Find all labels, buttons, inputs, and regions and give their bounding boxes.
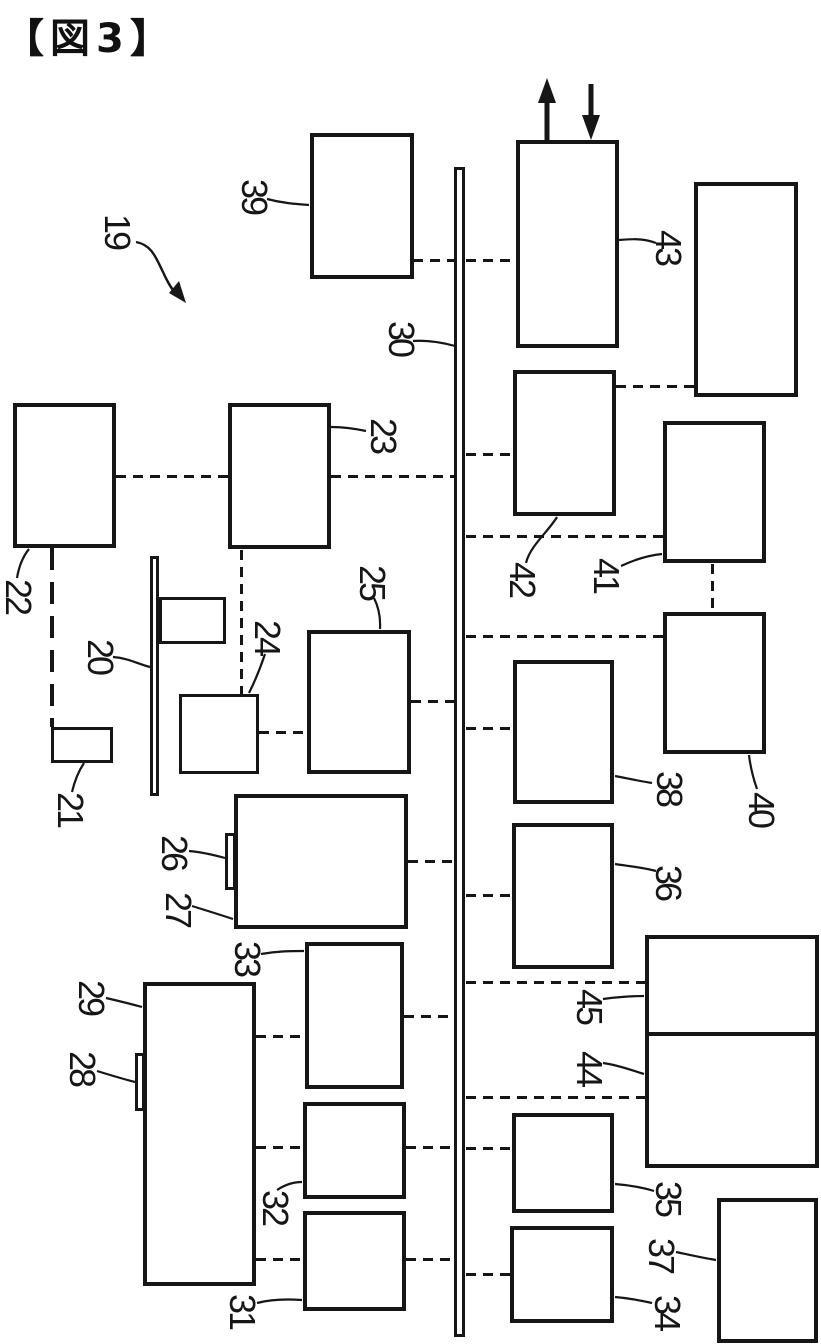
label-38: 38 xyxy=(651,771,687,805)
link-39-bus xyxy=(413,259,456,262)
label-33: 33 xyxy=(229,941,265,975)
label-34: 34 xyxy=(649,1295,685,1329)
block-23 xyxy=(228,403,331,549)
block-21 xyxy=(51,727,113,763)
leader-42 xyxy=(526,517,557,563)
bus-30 xyxy=(454,167,465,1337)
link-29-33 xyxy=(256,1035,305,1038)
link-23-bus xyxy=(331,475,455,478)
panel-20 xyxy=(150,556,159,796)
link-24-25 xyxy=(259,731,307,734)
link-25-bus xyxy=(411,700,455,703)
divider-45-44 xyxy=(649,1032,815,1036)
label-23: 23 xyxy=(365,418,401,452)
leader-41 xyxy=(621,554,662,566)
label-24: 24 xyxy=(249,620,285,654)
leader-37 xyxy=(676,1252,716,1260)
leader-25 xyxy=(374,598,380,629)
label-27: 27 xyxy=(160,892,196,926)
leader-24 xyxy=(249,654,265,693)
link-bus-43 xyxy=(466,259,516,262)
figure-title: 【図3】 xyxy=(4,6,176,64)
label-31: 31 xyxy=(224,1294,260,1328)
block-unlabeled-top-right xyxy=(694,182,798,397)
link-bus-41 xyxy=(466,535,663,538)
leader-22 xyxy=(17,549,29,578)
label-45: 45 xyxy=(571,989,607,1023)
label-40: 40 xyxy=(743,792,779,826)
label-32: 32 xyxy=(257,1190,293,1224)
label-41: 41 xyxy=(588,558,624,592)
block-39 xyxy=(310,133,414,279)
link-bus-44 xyxy=(466,1096,645,1099)
leader-23 xyxy=(331,427,366,431)
patent-figure: 【図3】 xyxy=(0,0,821,1344)
block-40 xyxy=(663,612,766,754)
link-29-31 xyxy=(256,1258,303,1261)
block-43 xyxy=(516,140,619,348)
block-37 xyxy=(717,1198,818,1343)
label-35: 35 xyxy=(650,1181,686,1215)
leader-31 xyxy=(257,1299,302,1303)
block-25 xyxy=(307,630,411,774)
block-38 xyxy=(513,660,614,804)
block-22 xyxy=(13,403,116,548)
link-29-32 xyxy=(256,1146,303,1149)
label-36: 36 xyxy=(650,865,686,899)
label-37: 37 xyxy=(643,1238,679,1272)
leader-32 xyxy=(277,1182,302,1190)
block-35 xyxy=(512,1113,614,1213)
link-32-bus xyxy=(406,1146,455,1149)
link-bus-40 xyxy=(466,635,663,638)
block-32 xyxy=(303,1102,406,1199)
block-45-44-stack xyxy=(645,935,819,1168)
block-31 xyxy=(303,1211,406,1311)
label-26: 26 xyxy=(156,835,192,869)
link-bus-36 xyxy=(466,894,512,897)
label-42: 42 xyxy=(504,562,540,596)
block-33 xyxy=(305,942,404,1089)
block-41 xyxy=(663,421,766,563)
link-22-21 xyxy=(50,548,54,727)
label-29: 29 xyxy=(73,980,109,1014)
label-20: 20 xyxy=(82,639,118,673)
label-44: 44 xyxy=(571,1051,607,1085)
link-23-24 xyxy=(240,550,243,694)
block-27 xyxy=(234,794,408,929)
link-22-23 xyxy=(116,475,228,478)
link-42-unlabeled xyxy=(616,385,694,388)
label-25: 25 xyxy=(354,565,390,599)
label-30: 30 xyxy=(383,321,419,355)
link-41-40 xyxy=(711,564,714,612)
link-bus-38 xyxy=(466,727,513,730)
link-bus-34 xyxy=(466,1273,510,1276)
block-29 xyxy=(143,982,256,1286)
link-33-bus xyxy=(404,1015,455,1018)
link-31-bus xyxy=(406,1258,455,1261)
label-21: 21 xyxy=(52,792,88,826)
leader-38 xyxy=(615,776,652,783)
link-bus-35 xyxy=(466,1147,512,1150)
system-arrow-19 xyxy=(136,242,186,303)
link-27-bus xyxy=(408,860,455,863)
label-19: 19 xyxy=(99,214,135,248)
block-36 xyxy=(512,823,614,969)
arrowhead-19 xyxy=(169,281,186,303)
link-bus-45 xyxy=(466,981,645,984)
block-24 xyxy=(179,694,259,774)
label-43: 43 xyxy=(650,230,686,264)
link-bus-42 xyxy=(466,453,513,456)
label-39: 39 xyxy=(236,179,272,213)
block-unlabeled-near-20 xyxy=(159,597,226,644)
label-28: 28 xyxy=(64,1051,100,1085)
arrow-up-icon xyxy=(538,78,556,103)
leader-21 xyxy=(72,763,84,792)
block-42 xyxy=(513,370,616,516)
arrow-down-icon xyxy=(582,115,600,140)
block-43-arrows xyxy=(538,78,600,140)
label-22: 22 xyxy=(0,579,36,613)
leader-40 xyxy=(749,755,757,789)
block-34 xyxy=(510,1226,614,1323)
